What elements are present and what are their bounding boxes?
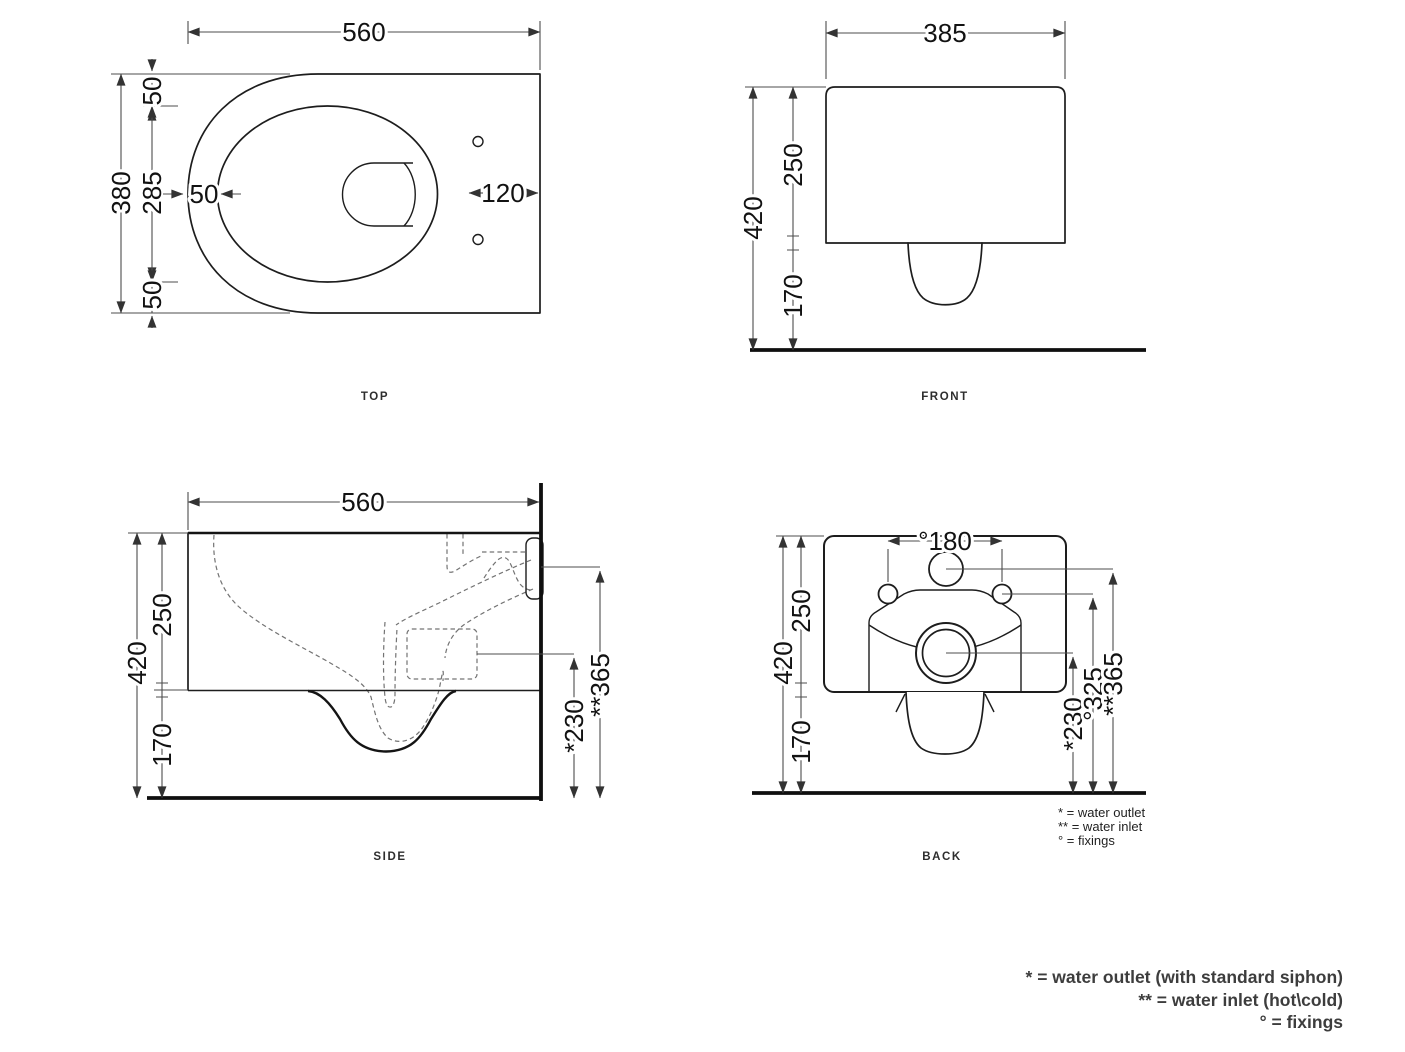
mini-legend-outlet: * = water outlet <box>1058 805 1145 820</box>
side-bowl-underside <box>308 691 456 752</box>
dim-text-side-inlet: **365 <box>585 653 615 717</box>
front-view-label: FRONT <box>921 391 969 403</box>
side-channel-upper-dashed <box>396 560 531 625</box>
dim-text-side-body: 250 <box>147 593 177 636</box>
top-sump <box>343 163 414 226</box>
dim-text-back-height: 420 <box>768 641 798 684</box>
front-view: 385 420 250 170 FRONT <box>738 18 1146 403</box>
technical-drawing-page: 560 380 50 285 50 50 120 <box>0 0 1405 1052</box>
mini-legend-inlet: ** = water inlet <box>1058 819 1143 834</box>
dim-rim-offset: 50 <box>163 179 241 209</box>
top-view: 560 380 50 285 50 50 120 <box>106 17 540 403</box>
dim-text-side-depth: 560 <box>341 487 384 517</box>
side-view-label: SIDE <box>373 851 406 863</box>
dim-text-front-body: 250 <box>778 143 808 186</box>
top-rim <box>218 106 438 282</box>
mini-legend-fixings: ° = fixings <box>1058 833 1115 848</box>
technical-drawing-svg: 560 380 50 285 50 50 120 <box>0 0 1405 1052</box>
fixing-circle-left <box>879 585 898 604</box>
dim-back-inlet: **365 <box>1098 573 1128 793</box>
top-view-label: TOP <box>361 391 389 403</box>
fixing-hole-bottom <box>473 235 483 245</box>
dim-side-chain: 250 170 <box>147 533 188 798</box>
dim-text-side-clearance: 170 <box>147 723 177 766</box>
dim-text-fixings-span: °180 <box>918 526 972 556</box>
dim-text-side-height: 420 <box>122 641 152 684</box>
dim-text-top-depth: 380 <box>106 171 136 214</box>
side-inlet-channel-dashed <box>447 534 481 572</box>
dim-side-inlet: **365 <box>541 567 615 798</box>
dim-side-outlet: *230 <box>477 654 589 798</box>
dim-side-depth: 560 <box>188 487 539 530</box>
dim-holes: 120 <box>469 178 538 208</box>
dim-text-front-width: 385 <box>923 18 966 48</box>
side-channel-lower-dashed <box>445 589 533 658</box>
dim-text-rim-offset: 50 <box>190 179 219 209</box>
dim-text-holes: 120 <box>481 178 524 208</box>
dim-text-front-height: 420 <box>738 196 768 239</box>
dim-text-back-clearance: 170 <box>786 720 816 763</box>
back-mini-legend: * = water outlet ** = water inlet ° = fi… <box>1058 805 1145 848</box>
footnotes: * = water outlet (with standard siphon) … <box>1026 966 1343 1034</box>
side-view: 560 420 250 170 *230 **365 SIDE <box>122 483 615 863</box>
side-outlet-box-dashed <box>407 629 477 679</box>
dim-text-inner-depth: 285 <box>137 171 167 214</box>
dim-text-gap-back: 50 <box>137 281 167 310</box>
dim-text-top-width: 560 <box>342 17 385 47</box>
side-inlet-peak-dashed <box>484 557 532 590</box>
footnote-water-inlet: ** = water inlet (hot\cold) <box>1026 989 1343 1012</box>
front-bowl <box>908 243 982 305</box>
dim-top-width: 560 <box>188 17 540 70</box>
side-trap-dashed <box>384 622 398 707</box>
dim-front-width: 385 <box>826 18 1065 79</box>
dim-text-back-inlet: **365 <box>1098 652 1128 716</box>
front-body <box>826 87 1065 243</box>
dim-text-front-clearance: 170 <box>778 274 808 317</box>
fixing-hole-top <box>473 137 483 147</box>
dim-front-chain: 250 170 <box>778 87 808 350</box>
back-view-label: BACK <box>922 851 962 863</box>
top-sump-arc <box>404 163 415 226</box>
footnote-fixings: ° = fixings <box>1026 1011 1343 1034</box>
dim-text-back-body: 250 <box>786 589 816 632</box>
footnote-water-outlet: * = water outlet (with standard siphon) <box>1026 966 1343 989</box>
side-bowl-profile-dashed <box>214 535 444 741</box>
back-view: °180 *230 °325 **365 420 250 170 <box>752 526 1146 863</box>
dim-text-gap-front: 50 <box>137 77 167 106</box>
